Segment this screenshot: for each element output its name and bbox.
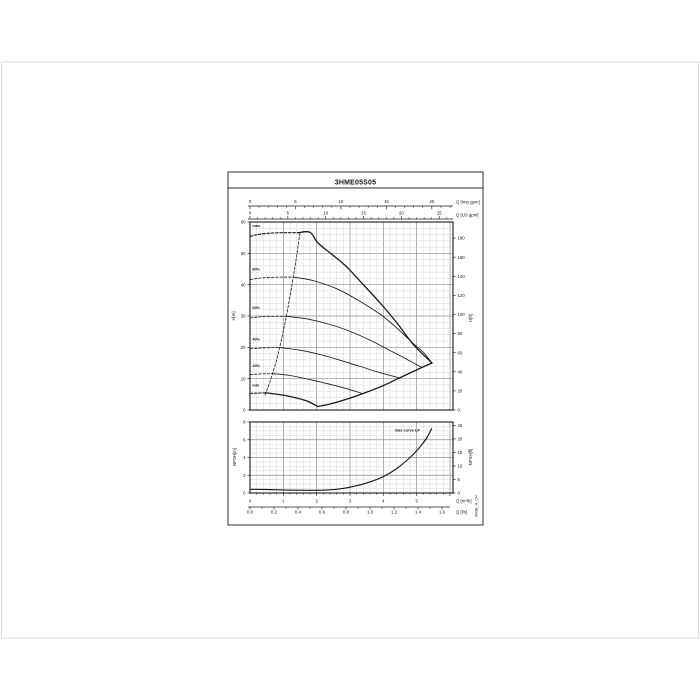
ls-tick-label: 1.4 xyxy=(415,510,422,515)
h-ft-tick-label: 120 xyxy=(458,293,466,298)
ls-tick-label: 1.6 xyxy=(439,510,446,515)
ls-tick-label: 0.6 xyxy=(319,510,326,515)
h-ft-tick-label: 180 xyxy=(458,236,466,241)
npsh-ft-tick-label: 10 xyxy=(458,464,463,469)
imp-gpm-axis-name: Q [Imp gpm] xyxy=(456,200,480,205)
m3h-axis-name: Q [m³/h] xyxy=(456,499,472,504)
imp-gpm-tick-label: 15 xyxy=(384,199,389,204)
page-canvas: 3HME05S05 05101520Q [Imp gpm]0510152025Q… xyxy=(0,0,700,700)
us-gpm-tick-label: 15 xyxy=(361,211,366,216)
ls-tick-label: 0.8 xyxy=(343,510,350,515)
h-m-axis-name: H[m] xyxy=(231,311,236,320)
imp-gpm-tick-label: 20 xyxy=(429,199,434,204)
us-gpm-tick-label: 10 xyxy=(323,211,328,216)
npsh-m-axis-name: NPSH[m] xyxy=(232,448,237,466)
h-ft-tick-label: 80 xyxy=(458,331,463,336)
pump-curve-datasheet: 3HME05S05 05101520Q [Imp gpm]0510152025Q… xyxy=(0,0,700,700)
npsh-annotation: max curve LP xyxy=(395,427,421,432)
h-m-tick-label: 60 xyxy=(241,220,246,225)
h-ft-tick-label: 40 xyxy=(458,369,463,374)
h-ft-tick-label: 140 xyxy=(458,274,466,279)
h-ft-tick-label: 60 xyxy=(458,350,463,355)
us-gpm-tick-label: 20 xyxy=(399,211,404,216)
curve-label-20pct: 20% xyxy=(252,364,260,368)
npsh-ft-tick-label: 15 xyxy=(458,450,463,455)
h-m-tick-label: 50 xyxy=(241,251,246,256)
h-m-tick-label: 40 xyxy=(241,282,246,287)
h-ft-tick-label: 160 xyxy=(458,255,466,260)
us-gpm-axis-name: Q [US gpm] xyxy=(456,213,478,218)
ls-tick-label: 0.2 xyxy=(271,510,278,515)
doc-code-text: A03B_A_CH xyxy=(475,495,479,517)
npsh-ft-tick-label: 25 xyxy=(458,423,463,428)
imp-gpm-tick-label: 10 xyxy=(339,199,344,204)
curve-label-40pct: 40% xyxy=(252,337,260,341)
sheet-outline xyxy=(228,172,483,525)
npsh-ft-axis-name: NPSH[ft] xyxy=(468,449,473,466)
curve-label-60pct: 60% xyxy=(252,306,260,310)
ls-tick-label: 0.4 xyxy=(295,510,302,515)
curve-label-min: min xyxy=(252,384,259,388)
ls-tick-label: 1.0 xyxy=(367,510,374,515)
us-gpm-tick-label: 25 xyxy=(437,211,442,216)
curve-label-max: max xyxy=(252,224,260,228)
npsh-ft-tick-label: 20 xyxy=(458,436,463,441)
npsh-chart: 02468NPSH[m]0510152025NPSH[ft]max curve … xyxy=(232,420,473,496)
ls-tick-label: 1.2 xyxy=(391,510,398,515)
sheet-border xyxy=(228,172,483,525)
h-m-tick-label: 20 xyxy=(241,345,246,350)
sheet-title: 3HME05S05 xyxy=(335,180,377,187)
ls-tick-label: 0.0 xyxy=(247,510,254,515)
h-ft-tick-label: 100 xyxy=(458,312,466,317)
curve-label-80pct: 80% xyxy=(252,267,260,271)
h-ft-axis-name: H[ft] xyxy=(468,314,473,322)
ls-axis-name: Q [l/s] xyxy=(456,510,467,515)
h-m-tick-label: 10 xyxy=(241,376,246,381)
h-m-tick-label: 30 xyxy=(241,314,246,319)
h-ft-tick-label: 20 xyxy=(458,388,463,393)
